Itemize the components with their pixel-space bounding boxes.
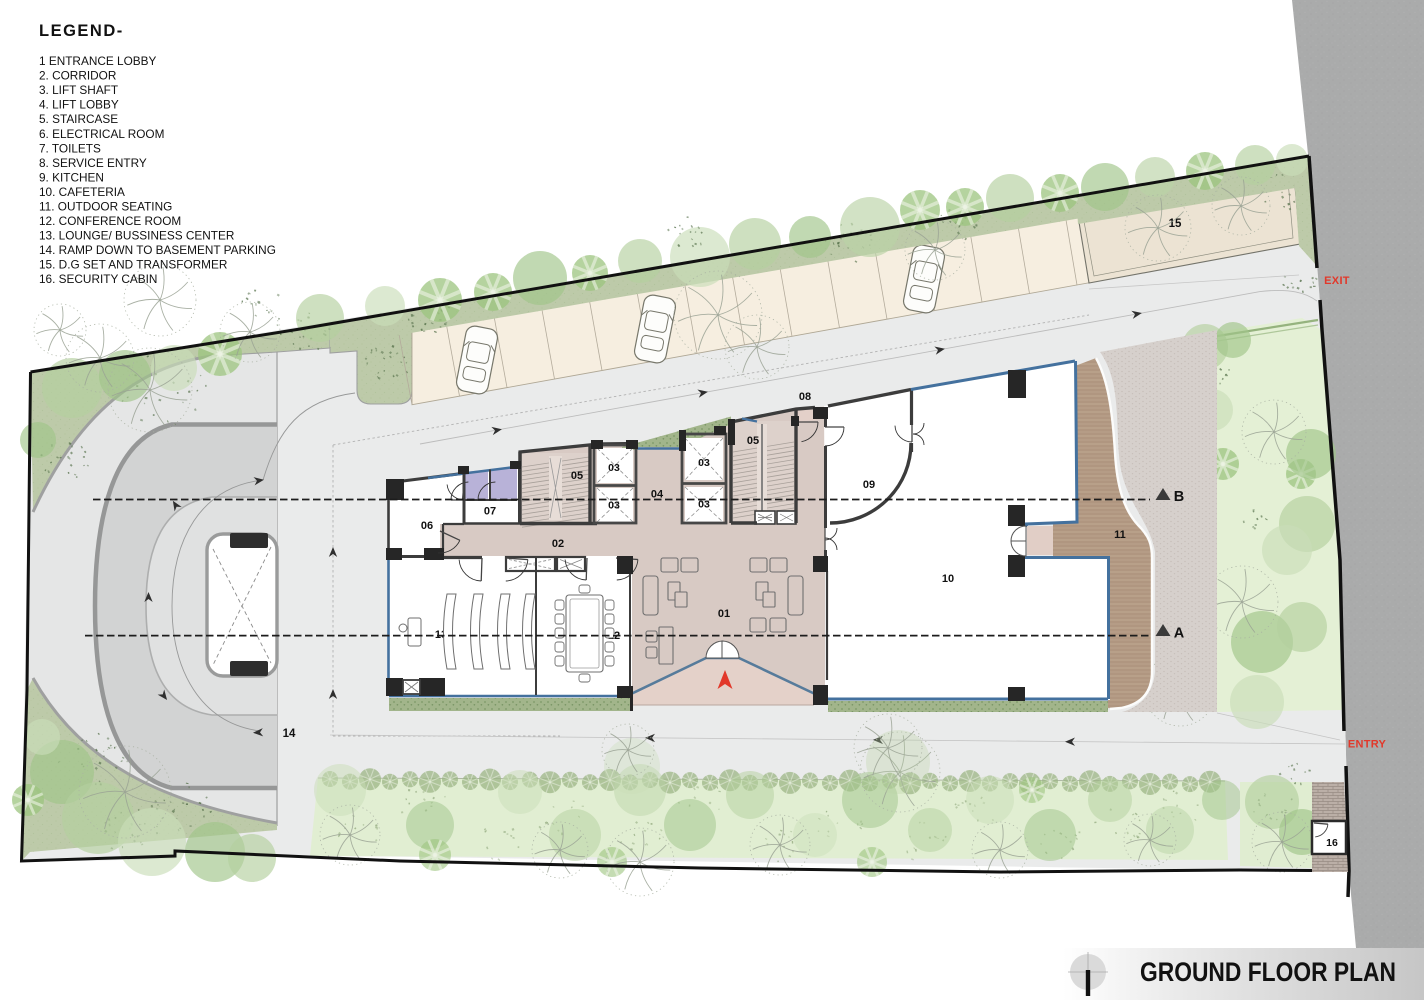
svg-text:ENTRY: ENTRY (1348, 739, 1387, 751)
svg-text:8. SERVICE ENTRY: 8. SERVICE ENTRY (39, 156, 147, 170)
svg-text:LEGEND-: LEGEND- (39, 22, 124, 40)
svg-text:B: B (1174, 489, 1184, 505)
svg-text:11. OUTDOOR SEATING: 11. OUTDOOR SEATING (39, 200, 172, 214)
svg-text:02: 02 (552, 538, 564, 550)
svg-text:07: 07 (484, 506, 496, 518)
svg-text:5. STAIRCASE: 5. STAIRCASE (39, 112, 118, 126)
svg-text:3. LIFT SHAFT: 3. LIFT SHAFT (39, 83, 118, 97)
svg-text:9. KITCHEN: 9. KITCHEN (39, 170, 104, 184)
svg-text:4. LIFT LOBBY: 4. LIFT LOBBY (39, 98, 119, 112)
svg-text:05: 05 (747, 435, 759, 447)
svg-text:GROUND FLOOR PLAN: GROUND FLOOR PLAN (1140, 957, 1396, 987)
svg-text:01: 01 (718, 608, 730, 620)
svg-text:03: 03 (698, 457, 710, 469)
svg-text:03: 03 (608, 500, 620, 512)
svg-text:09: 09 (863, 479, 875, 491)
svg-text:03: 03 (608, 462, 620, 474)
svg-text:16. SECURITY CABIN: 16. SECURITY CABIN (39, 272, 157, 286)
svg-text:13. LOUNGE/ BUSSINESS CENTER: 13. LOUNGE/ BUSSINESS CENTER (39, 229, 234, 243)
svg-text:1 ENTRANCE LOBBY: 1 ENTRANCE LOBBY (39, 54, 156, 68)
svg-text:EXIT: EXIT (1324, 275, 1350, 287)
svg-text:14. RAMP DOWN TO BASEMENT PARK: 14. RAMP DOWN TO BASEMENT PARKING (39, 243, 276, 257)
svg-text:06: 06 (421, 520, 433, 532)
svg-text:08: 08 (799, 391, 811, 403)
svg-text:6. ELECTRICAL ROOM: 6. ELECTRICAL ROOM (39, 127, 164, 141)
svg-text:14: 14 (283, 728, 296, 740)
svg-text:2. CORRIDOR: 2. CORRIDOR (39, 69, 116, 83)
svg-text:15. D.G SET AND TRANSFORMER: 15. D.G SET AND TRANSFORMER (39, 258, 227, 272)
svg-text:10: 10 (942, 573, 954, 585)
svg-text:05: 05 (571, 470, 583, 482)
svg-text:10. CAFETERIA: 10. CAFETERIA (39, 185, 125, 199)
svg-text:7. TOILETS: 7. TOILETS (39, 141, 101, 155)
svg-text:11: 11 (1114, 529, 1126, 541)
svg-text:16: 16 (1326, 837, 1338, 849)
svg-text:12. CONFERENCE ROOM: 12. CONFERENCE ROOM (39, 214, 181, 228)
svg-text:A: A (1174, 626, 1185, 642)
